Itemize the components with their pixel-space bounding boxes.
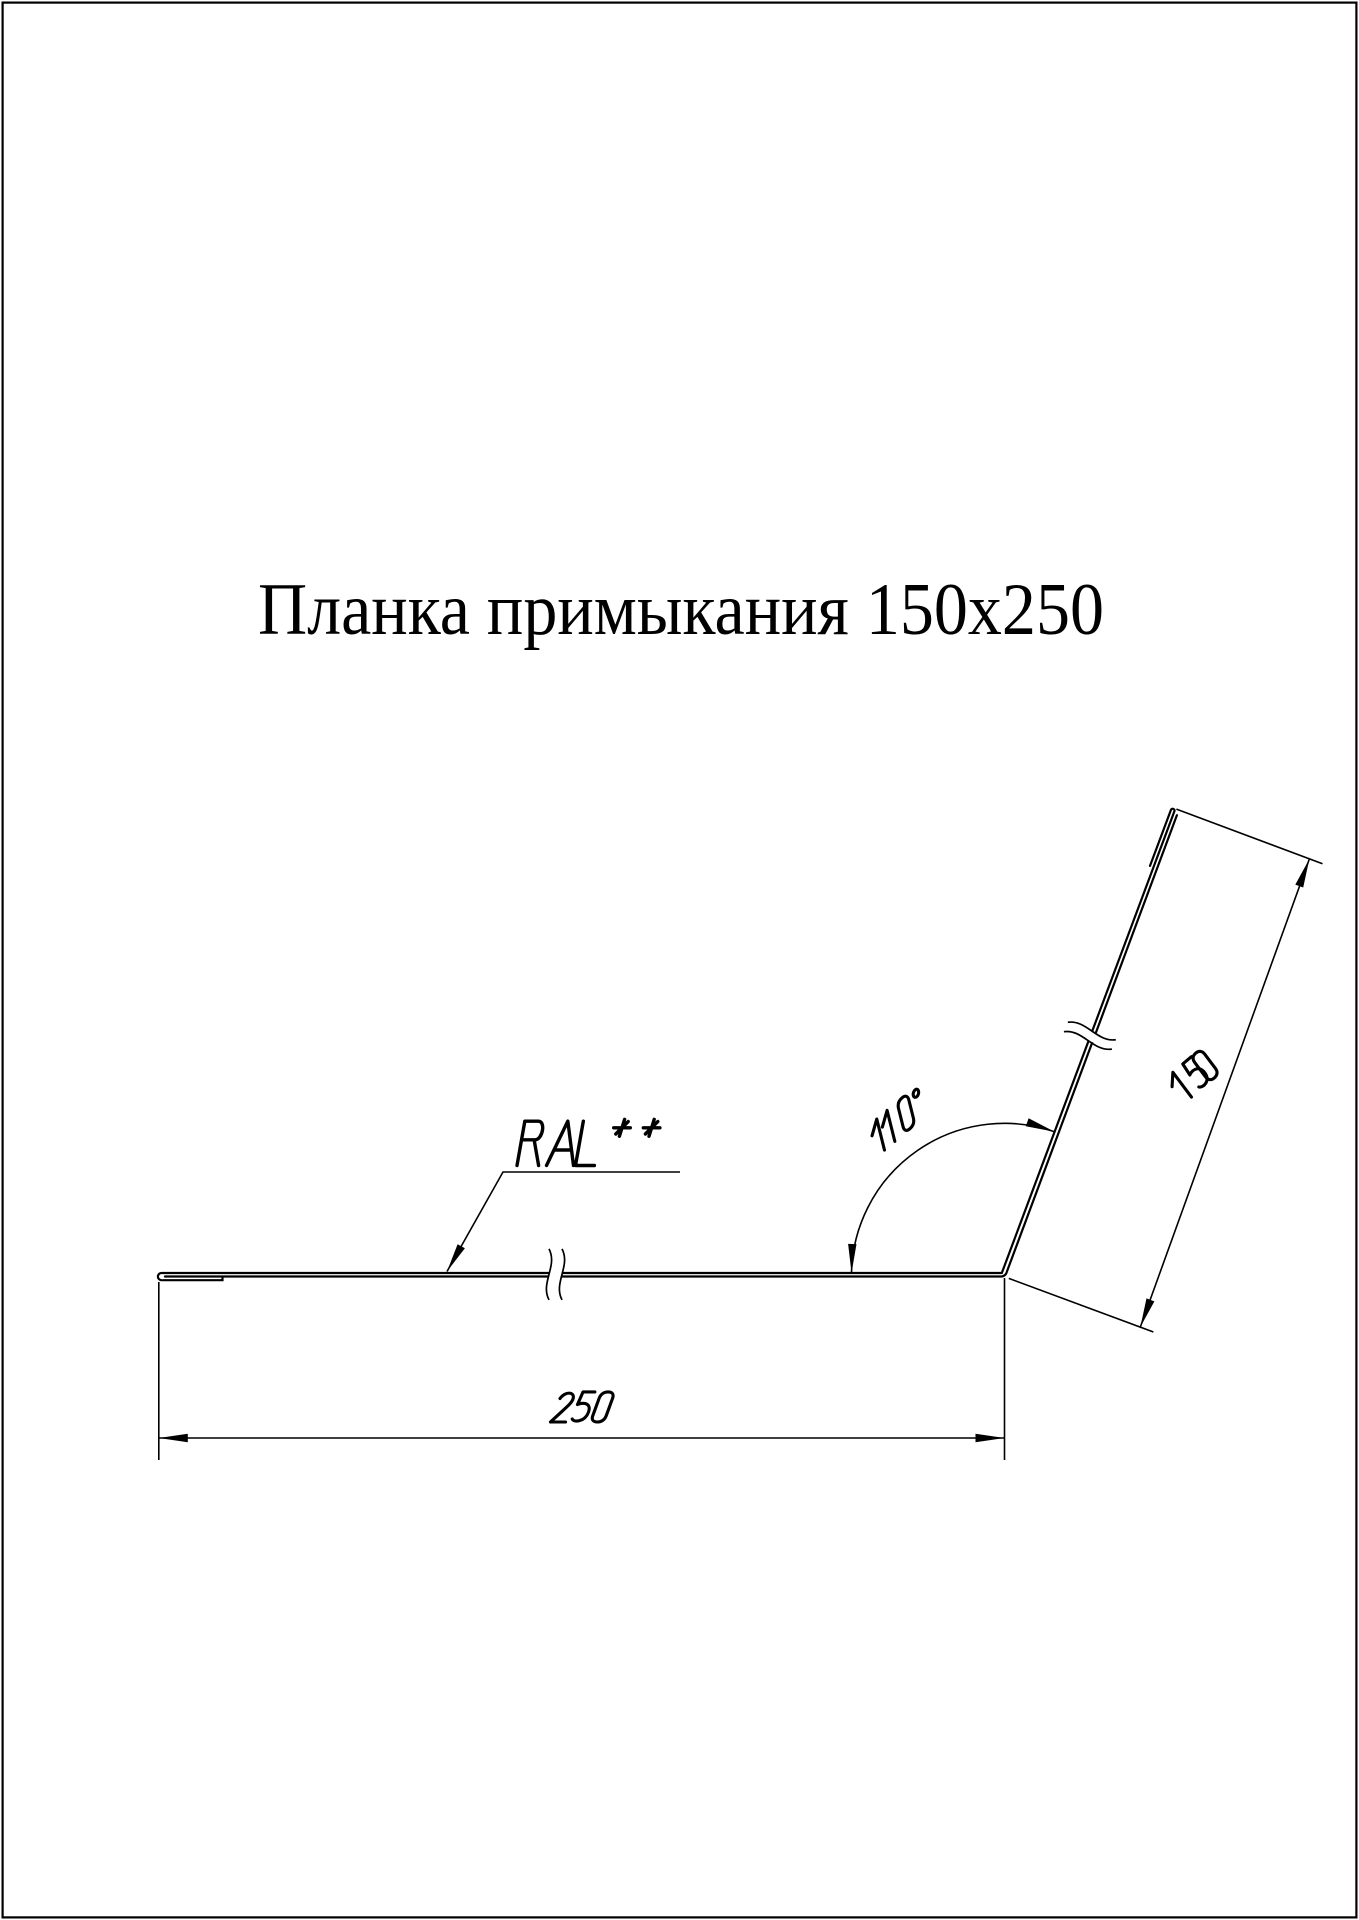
- svg-text:Планка примыкания 150х250: Планка примыкания 150х250: [258, 569, 1104, 651]
